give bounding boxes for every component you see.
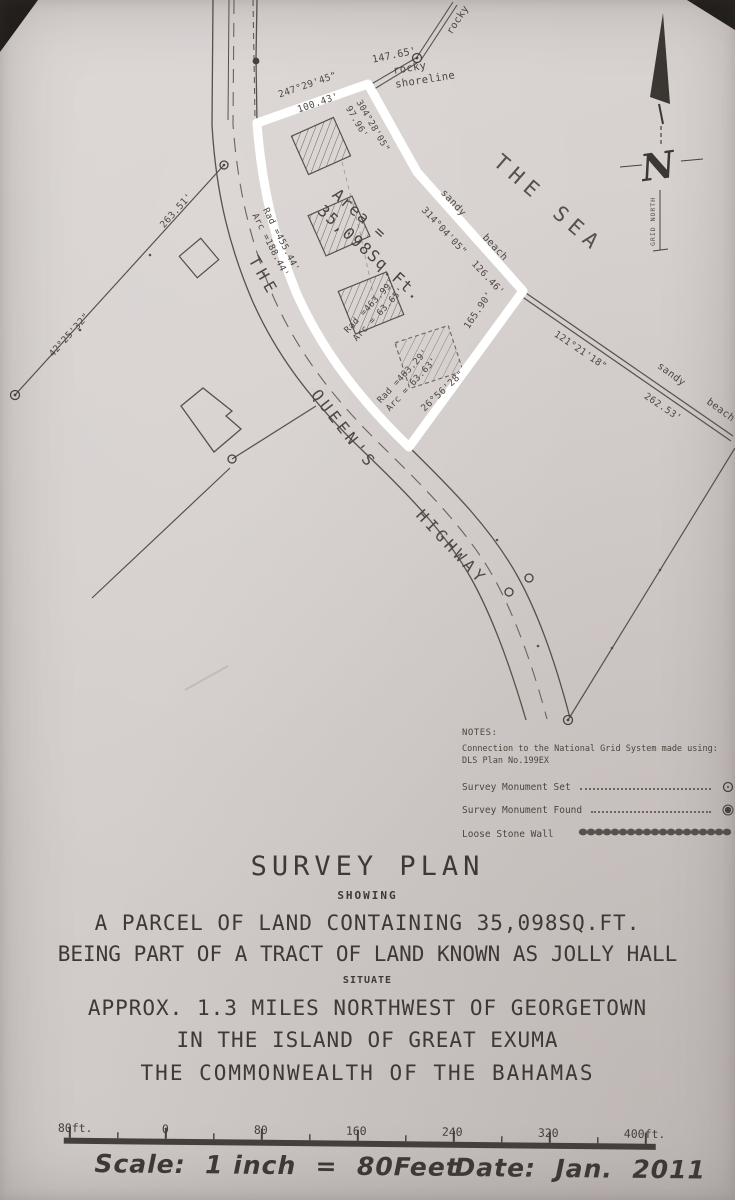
north-caption: GRID NORTH — [649, 197, 657, 246]
scale-tick-label: 400ft. — [624, 1127, 666, 1141]
scale-text: Scale: 1 inch = 80Feet — [94, 1149, 459, 1182]
house-tie-line — [232, 406, 316, 459]
date-text: Date: Jan. 2011 — [454, 1153, 706, 1185]
scale-tick-label: 320 — [538, 1126, 559, 1140]
building-1 — [291, 117, 350, 174]
dotted-leader — [580, 787, 711, 790]
scale-tick-label: 240 — [442, 1125, 463, 1139]
legend-label-stone-wall: Loose Stone Wall — [462, 829, 554, 840]
legend-row-monument-set: Survey Monument Set — [462, 781, 734, 793]
title-line-4: IN THE ISLAND OF GREAT EXUMA — [0, 1028, 735, 1052]
plan-title: SURVEY PLAN — [0, 851, 735, 882]
notes-heading: NOTES: — [462, 728, 734, 738]
notes-line-2: DLS Plan No.199EX — [462, 755, 734, 767]
title-situate: SITUATE — [0, 975, 735, 986]
tract-boundary-lines — [15, 84, 735, 720]
scale-tick-label: 0 — [162, 1122, 169, 1136]
notes-line-1: Connection to the National Grid System m… — [462, 743, 734, 755]
scale-tick-label: 160 — [346, 1124, 367, 1138]
legend-label-monument-set: Survey Monument Set — [462, 782, 571, 793]
monument-set-icon — [718, 781, 734, 793]
highway-road-lines — [212, 0, 570, 720]
legend-row-monument-found: Survey Monument Found — [462, 804, 734, 816]
dotted-leader — [591, 810, 711, 813]
survey-monuments — [11, 54, 573, 725]
beach-line-lower — [521, 296, 731, 441]
title-line-2: BEING PART OF A TRACT OF LAND KNOWN AS J… — [0, 942, 735, 966]
house-outline — [181, 388, 241, 452]
stone-wall-icon — [578, 827, 734, 840]
title-line-1: A PARCEL OF LAND CONTAINING 35,098SQ.FT. — [0, 911, 735, 935]
legend-label-monument-found: Survey Monument Found — [462, 805, 582, 816]
survey-plan-page: THE SEA THE QUEEN'S HIGHWAY rocky rocky … — [0, 0, 735, 1200]
scale-tick-label: 80 — [254, 1123, 268, 1137]
title-showing: SHOWING — [0, 889, 735, 902]
title-line-3: APPROX. 1.3 MILES NORTHWEST OF GEORGETOW… — [0, 996, 735, 1020]
small-square-building — [179, 238, 218, 277]
fence-line — [92, 468, 230, 598]
legend: Survey Monument Set Survey Monument Foun… — [462, 781, 734, 840]
north-arrow — [620, 13, 703, 251]
scale-tick-label: 80ft. — [58, 1121, 93, 1135]
scan-smudge — [185, 666, 228, 690]
notes-block: NOTES: Connection to the National Grid S… — [462, 728, 734, 851]
title-line-5: THE COMMONWEALTH OF THE BAHAMAS — [0, 1061, 735, 1085]
beach-line-upper — [523, 291, 733, 436]
north-letter: N — [638, 142, 678, 190]
legend-row-stone-wall: Loose Stone Wall — [462, 827, 734, 840]
title-block: SURVEY PLAN SHOWING A PARCEL OF LAND CON… — [0, 851, 735, 1085]
monument-found-icon — [718, 804, 734, 816]
east-boundary-line — [568, 448, 735, 720]
